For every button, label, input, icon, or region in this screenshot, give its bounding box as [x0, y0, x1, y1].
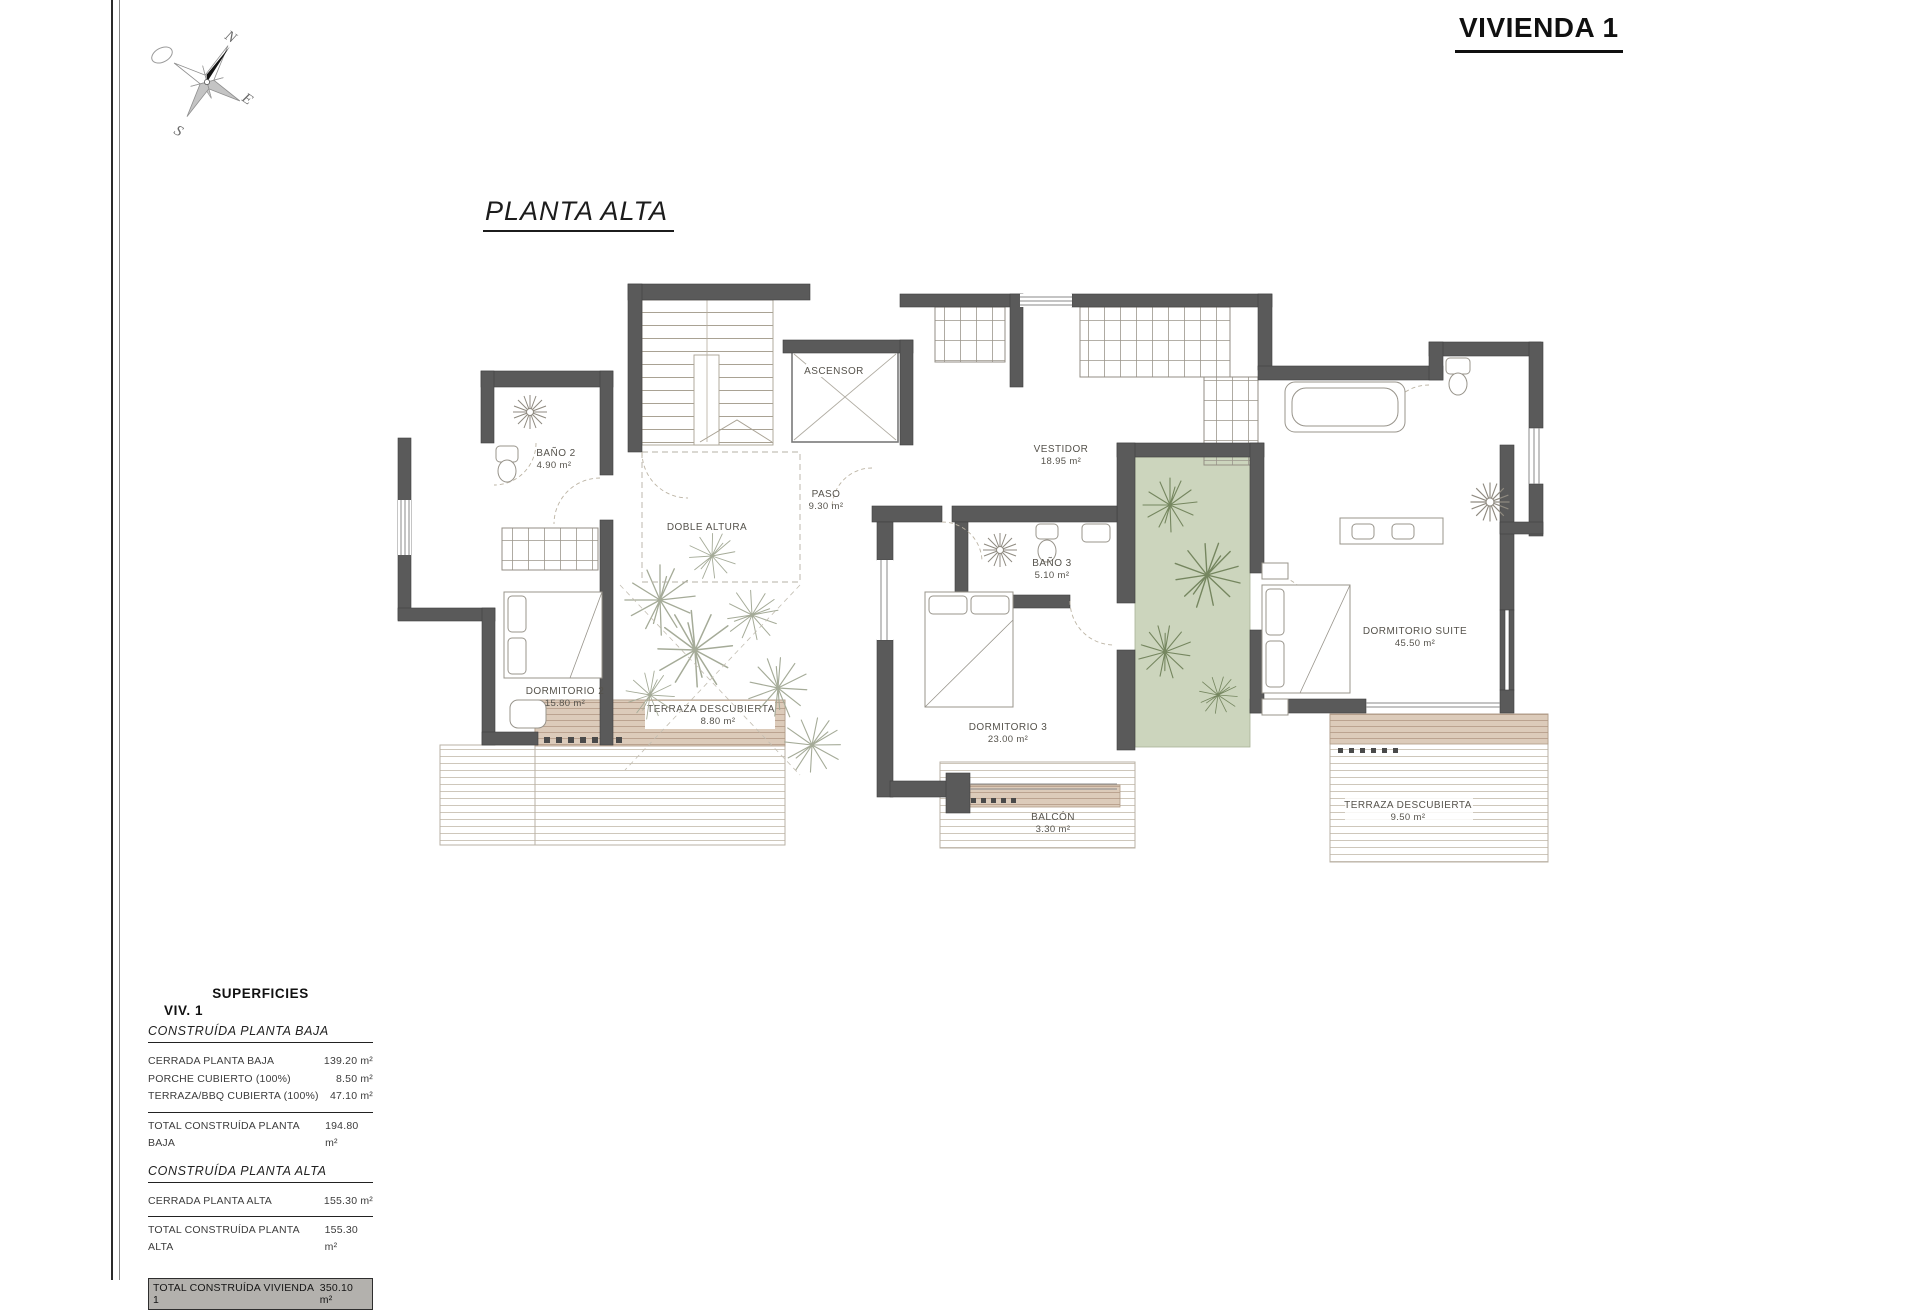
- elevator: ASCENSOR: [792, 352, 898, 442]
- row-value: 47.10 m²: [330, 1088, 373, 1106]
- total-label: TOTAL CONSTRUÍDA PLANTA ALTA: [148, 1222, 325, 1256]
- total-label: TOTAL CONSTRUÍDA PLANTA BAJA: [148, 1118, 325, 1152]
- total-value: 155.30 m²: [325, 1222, 373, 1256]
- row-value: 139.20 m²: [324, 1053, 373, 1071]
- room-label-dorm2: DORMITORIO 2: [526, 686, 605, 697]
- room-area-terraza-8: 8.80 m²: [701, 716, 736, 727]
- table-total-row: TOTAL CONSTRUÍDA PLANTA BAJA 194.80 m²: [148, 1118, 373, 1152]
- room-area-terraza-9: 9.50 m²: [1391, 812, 1426, 823]
- table-separator: [148, 1112, 373, 1113]
- row-label: CERRADA PLANTA ALTA: [148, 1193, 272, 1211]
- table-row: CERRADA PLANTA BAJA 139.20 m²: [148, 1053, 373, 1071]
- floorplan-sheet: { "sheet": { "title": "VIVIENDA 1", "pla…: [0, 0, 1920, 1280]
- room-label-bano3: BAÑO 3: [1032, 556, 1071, 569]
- room-area-suite: 45.50 m²: [1395, 638, 1435, 649]
- room-area-dorm3: 23.00 m²: [988, 734, 1028, 745]
- room-area-balcon: 3.30 m²: [1036, 824, 1071, 835]
- table-row: PORCHE CUBIERTO (100%) 8.50 m²: [148, 1071, 373, 1089]
- room-area-dorm2: 15.80 m²: [545, 698, 585, 709]
- room-label-vestidor: VESTIDOR: [1034, 444, 1089, 455]
- row-value: 8.50 m²: [336, 1071, 373, 1089]
- total-value: 194.80 m²: [325, 1118, 373, 1152]
- grand-total-label: TOTAL CONSTRUÍDA VIVIENDA 1: [153, 1282, 320, 1306]
- room-label-doble-altura: DOBLE ALTURA: [667, 522, 747, 533]
- room-area-bano2: 4.90 m²: [537, 460, 572, 471]
- green-patio: [1132, 457, 1250, 747]
- table-row: CERRADA PLANTA ALTA 155.30 m²: [148, 1193, 373, 1211]
- table-row: TERRAZA/BBQ CUBIERTA (100%) 47.10 m²: [148, 1088, 373, 1106]
- room-area-bano3: 5.10 m²: [1035, 570, 1070, 581]
- room-area-vestidor: 18.95 m²: [1041, 456, 1081, 467]
- bed-suite: [1262, 563, 1350, 715]
- grand-total-value: 350.10 m²: [320, 1282, 368, 1306]
- section-title-planta-alta: CONSTRUÍDA PLANTA ALTA: [148, 1164, 373, 1183]
- row-value: 155.30 m²: [324, 1193, 373, 1211]
- grand-total-row: TOTAL CONSTRUÍDA VIVIENDA 1 350.10 m²: [148, 1278, 373, 1310]
- row-label: PORCHE CUBIERTO (100%): [148, 1071, 291, 1089]
- section-title-planta-baja: CONSTRUÍDA PLANTA BAJA: [148, 1024, 373, 1043]
- double-height-void: DOBLE ALTURA: [642, 452, 800, 582]
- room-label-terraza-9: TERRAZA DESCUBIERTA: [1344, 800, 1472, 811]
- terrace-suite: TERRAZA DESCUBIERTA 9.50 m²: [1330, 714, 1548, 862]
- room-label-paso: PASO: [812, 489, 841, 500]
- row-label: CERRADA PLANTA BAJA: [148, 1053, 274, 1071]
- table-separator: [148, 1216, 373, 1217]
- room-label-balcon: BALCÓN: [1031, 810, 1075, 823]
- room-label-suite: DORMITORIO SUITE: [1363, 626, 1467, 637]
- room-area-paso: 9.30 m²: [809, 501, 844, 512]
- room-label-ascensor: ASCENSOR: [804, 366, 864, 377]
- room-label-bano2: BAÑO 2: [536, 446, 575, 459]
- surfaces-subheading: VIV. 1: [164, 1003, 373, 1018]
- room-label-dorm3: DORMITORIO 3: [969, 722, 1048, 733]
- surfaces-heading: SUPERFICIES: [148, 986, 373, 1001]
- surfaces-table: SUPERFICIES VIV. 1 CONSTRUÍDA PLANTA BAJ…: [148, 986, 373, 1310]
- table-total-row: TOTAL CONSTRUÍDA PLANTA ALTA 155.30 m²: [148, 1222, 373, 1256]
- staircase: [642, 300, 773, 445]
- bed-dorm3: [925, 592, 1013, 707]
- row-label: TERRAZA/BBQ CUBIERTA (100%): [148, 1088, 319, 1106]
